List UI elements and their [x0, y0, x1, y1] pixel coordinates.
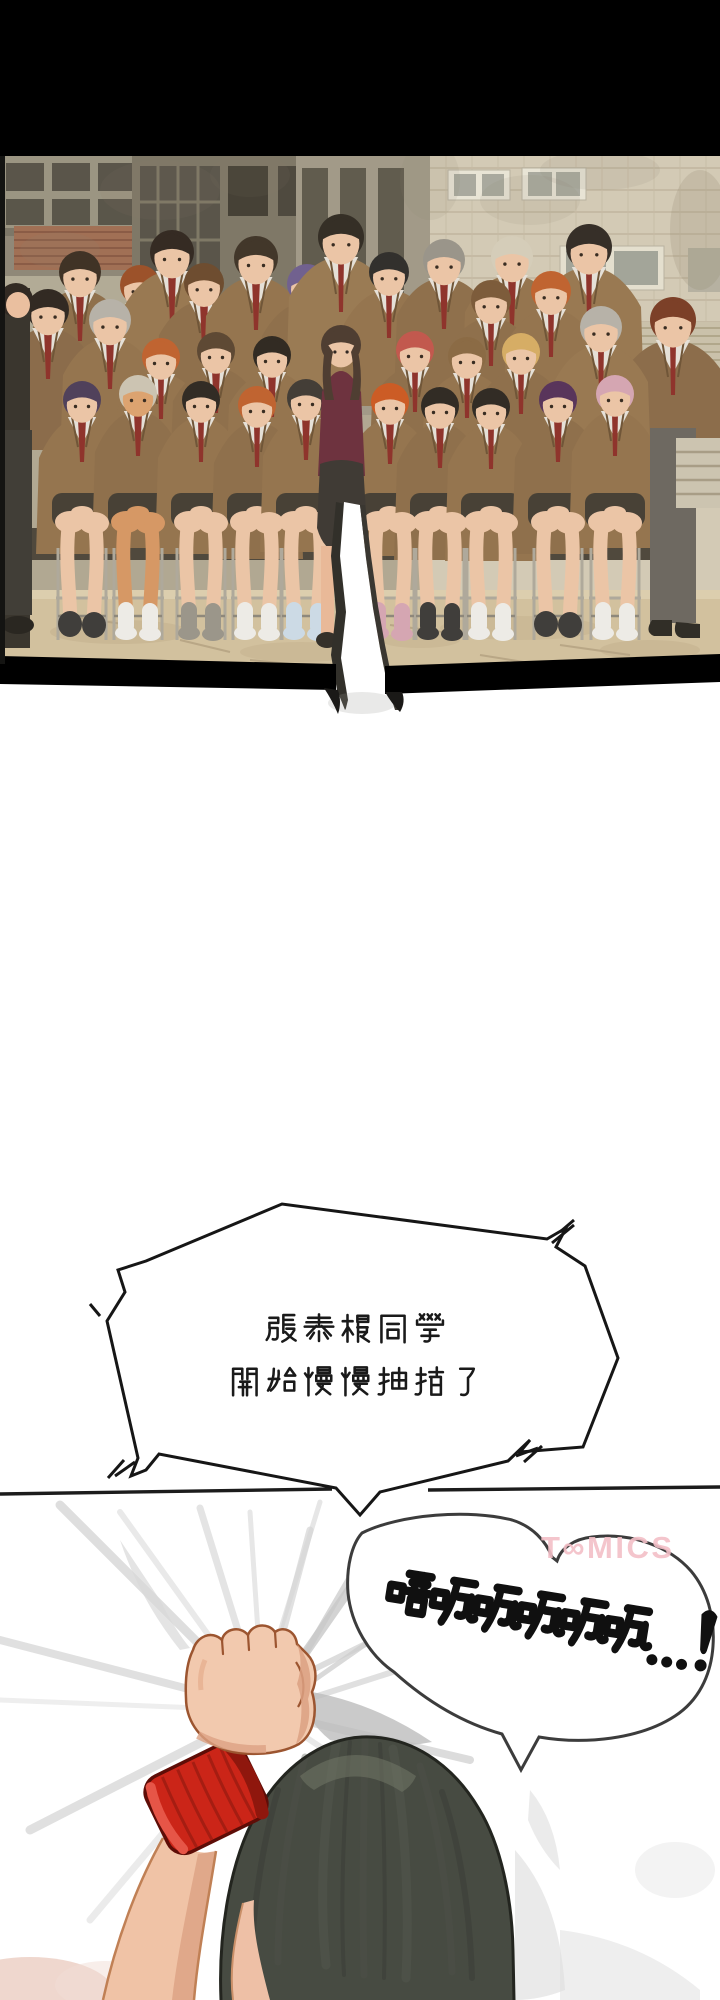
svg-text:T∞MICS: T∞MICS: [541, 1530, 675, 1565]
